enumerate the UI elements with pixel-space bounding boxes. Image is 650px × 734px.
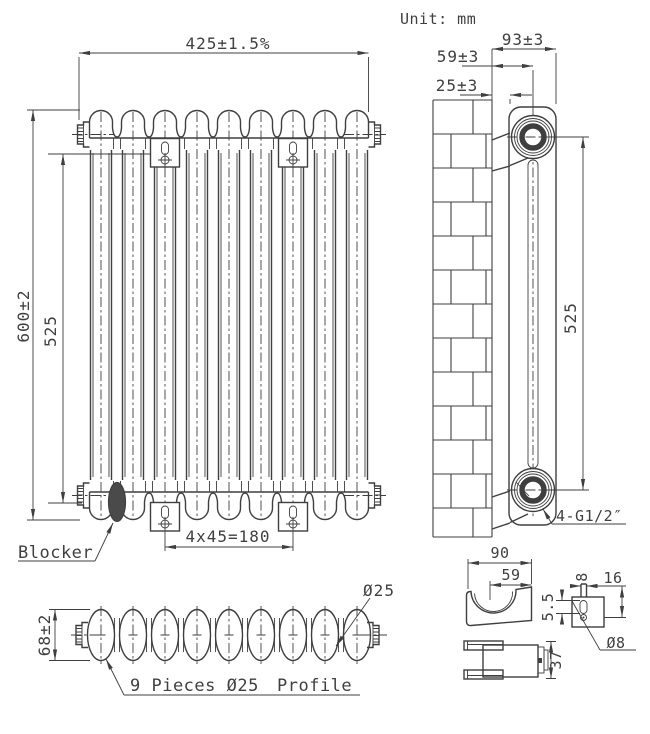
dim-slot: 5.5 <box>539 593 557 622</box>
bracket-bottom-view <box>464 641 556 679</box>
profile-label: Profile <box>277 676 352 696</box>
dim-tube-diameter: Ø25 <box>363 581 395 600</box>
dim-depth: 93±3 <box>502 30 545 49</box>
dim-pin-to-hole: 16 <box>603 569 622 587</box>
connection-thread-label: 4-G1/2″ <box>556 507 623 525</box>
side-radiator-body <box>509 107 556 525</box>
dim-wall-to-center: 59±3 <box>437 47 480 66</box>
brick-wall <box>433 100 492 537</box>
blocker-plug <box>109 483 126 522</box>
dim-overall-height: 600±2 <box>14 289 33 342</box>
front-view-dimensions <box>18 53 369 561</box>
side-mount-arms <box>492 133 528 529</box>
hook-bracket-dimensions <box>468 559 532 600</box>
radiator-technical-drawing: Unit: mm 425±1.5% 600±2 525 4x45=180 Blo… <box>0 0 650 734</box>
dim-hook-offset: 59 <box>501 566 520 584</box>
dim-mount-height: 525 <box>41 315 60 347</box>
dim-pin-diameter: 8 <box>573 572 591 582</box>
dim-wall-gap: 25±3 <box>436 76 479 95</box>
dim-bracket-spacing: 4x45=180 <box>185 527 270 546</box>
dim-port-spacing: 525 <box>561 302 580 334</box>
pieces-label: 9 Pieces Ø25 <box>130 676 259 696</box>
front-view <box>18 53 386 561</box>
dim-overall-width: 425±1.5% <box>185 34 270 53</box>
unit-note: Unit: mm <box>400 10 476 28</box>
dim-bracket-depth: 37 <box>547 650 565 669</box>
side-view <box>433 49 626 537</box>
dim-profile-height: 68±2 <box>35 614 54 657</box>
blocker-label: Blocker <box>18 543 93 563</box>
hook-bracket-side <box>467 587 532 626</box>
dim-bracket-width: 90 <box>490 544 509 562</box>
dim-hole-diameter: Ø8 <box>606 634 625 652</box>
radiator-technical-drawing-page: Unit: mm 425±1.5% 600±2 525 4x45=180 Blo… <box>0 0 650 734</box>
